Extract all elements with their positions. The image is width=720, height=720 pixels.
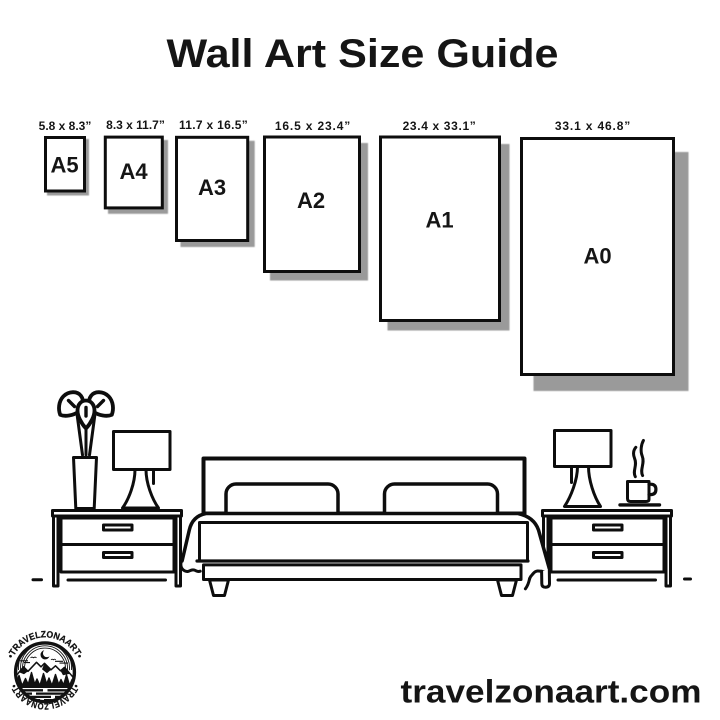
svg-text:Wall Art Size Guide: Wall Art Size Guide: [167, 32, 559, 76]
svg-text:A3: A3: [198, 175, 226, 200]
svg-text:23.4 x 33.1”: 23.4 x 33.1”: [403, 119, 477, 133]
svg-text:16.5 x 23.4”: 16.5 x 23.4”: [275, 119, 351, 133]
svg-text:33.1 x 46.8”: 33.1 x 46.8”: [555, 119, 631, 133]
svg-text:A5: A5: [50, 152, 78, 177]
svg-text:A0: A0: [583, 243, 611, 268]
svg-text:A1: A1: [425, 207, 453, 232]
svg-text:travelzonaart.com: travelzonaart.com: [401, 674, 702, 710]
svg-text:11.7 x 16.5”: 11.7 x 16.5”: [179, 118, 248, 132]
svg-text:8.3 x 11.7”: 8.3 x 11.7”: [106, 118, 165, 132]
svg-text:A2: A2: [297, 188, 325, 213]
svg-text:5.8 x 8.3”: 5.8 x 8.3”: [39, 119, 92, 133]
svg-text:A4: A4: [119, 159, 148, 184]
